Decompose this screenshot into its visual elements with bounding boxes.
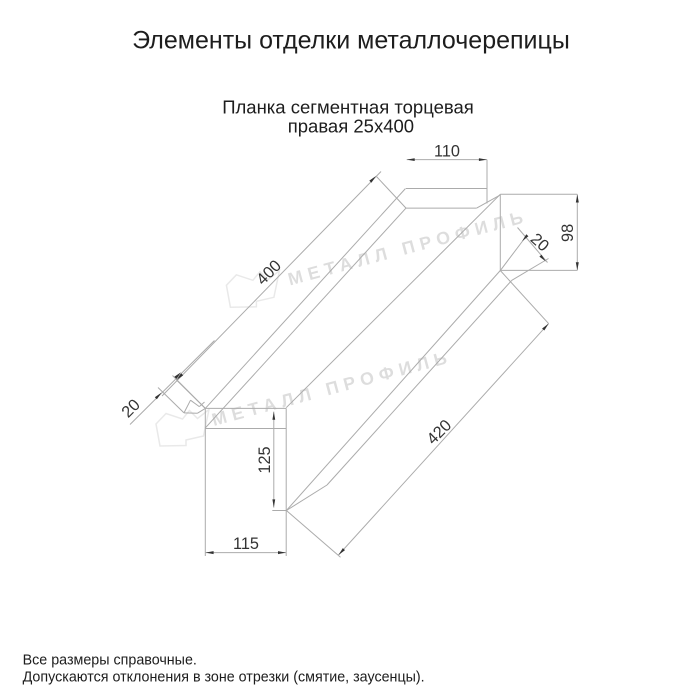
svg-text:Элементы отделки металлочерепи: Элементы отделки металлочерепицы — [132, 27, 570, 55]
svg-text:Все размеры справочные.: Все размеры справочные. — [23, 653, 197, 669]
svg-text:125: 125 — [256, 446, 274, 473]
svg-text:98: 98 — [559, 224, 577, 242]
svg-text:110: 110 — [434, 142, 460, 160]
svg-text:Допускаются отклонения в зоне: Допускаются отклонения в зоне отрезки (с… — [23, 670, 425, 686]
svg-text:правая 25х400: правая 25х400 — [288, 115, 414, 136]
svg-text:115: 115 — [233, 535, 259, 553]
